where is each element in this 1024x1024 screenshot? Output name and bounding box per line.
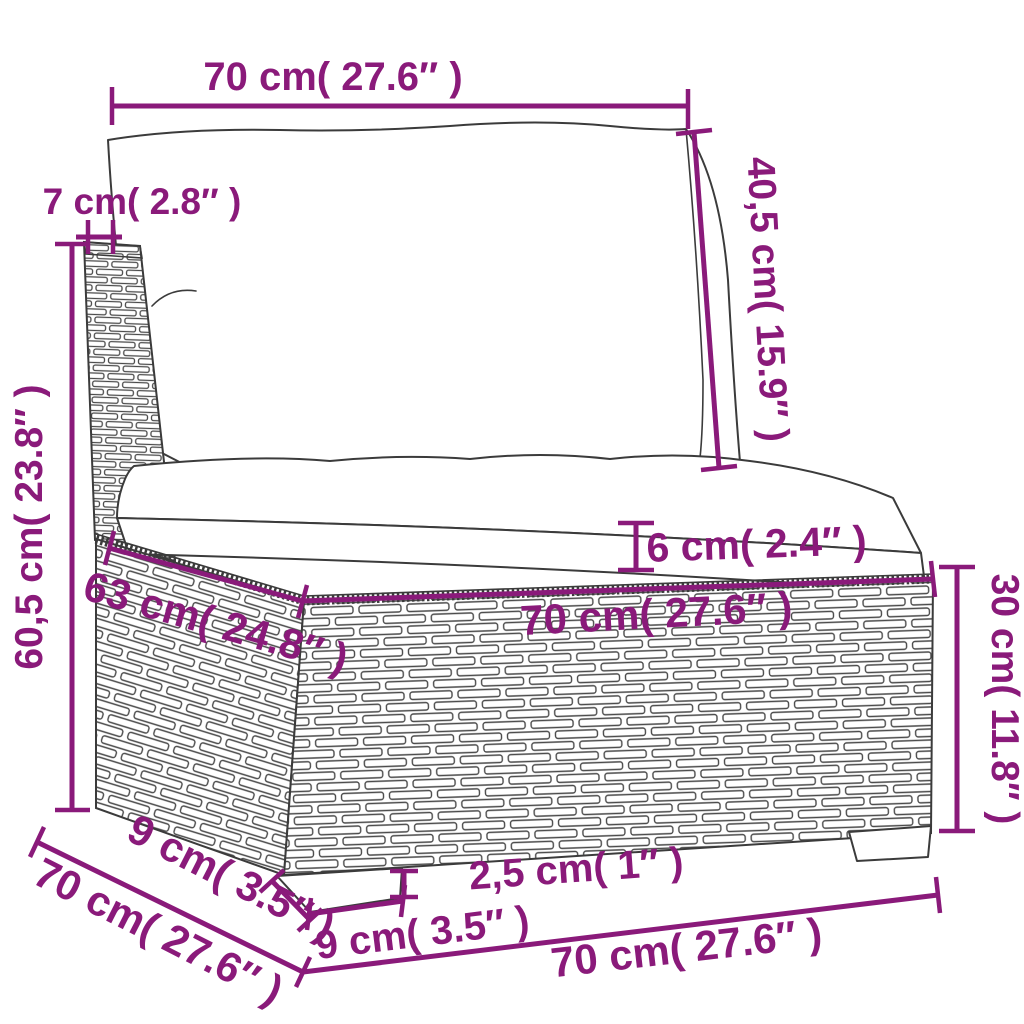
dimension-top-width: 70 cm( 27.6″ )	[112, 55, 688, 129]
dim-label-top-width: 70 cm( 27.6″ )	[203, 55, 462, 99]
dim-tick	[936, 877, 940, 913]
diagram-canvas: 70 cm( 27.6″ ) 40,5 cm( 15.9″ ) 7 cm( 2.…	[0, 0, 1024, 1024]
back-cushion	[108, 123, 740, 475]
dimension-cushion-thickness: 6 cm( 2.4″ )	[618, 517, 867, 571]
dim-label-bottom-width: 70 cm( 27.6″ )	[548, 909, 824, 987]
dimension-total-height: 60,5 cm( 23.8″ )	[8, 244, 90, 810]
dim-label-back-height: 40,5 cm( 15.9″ )	[739, 156, 797, 443]
dimension-diagram: 70 cm( 27.6″ ) 40,5 cm( 15.9″ ) 7 cm( 2.…	[0, 0, 1024, 1024]
dim-label-cushion-thickness: 6 cm( 2.4″ )	[646, 517, 868, 571]
dim-label-base-height: 30 cm( 11.8″ )	[983, 574, 1024, 825]
sofa-line-art	[84, 123, 933, 913]
dim-label-post-width: 7 cm( 2.8″ )	[43, 181, 242, 222]
front-right-leg	[849, 826, 931, 861]
dimension-base-height: 30 cm( 11.8″ )	[939, 567, 1024, 831]
dim-label-total-height: 60,5 cm( 23.8″ )	[8, 384, 51, 669]
